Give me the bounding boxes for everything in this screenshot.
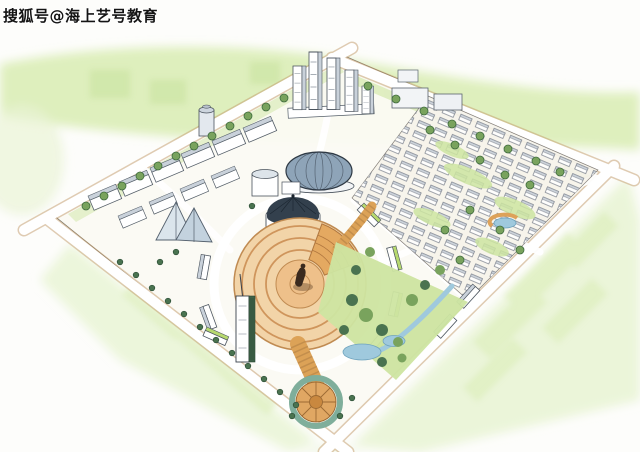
cylinder-hall <box>252 170 278 197</box>
water-tower <box>199 105 214 136</box>
master-plan-rendering: 搜狐号@海上艺号教育 <box>0 0 640 452</box>
lookout-plaza <box>292 378 340 426</box>
pond-large <box>343 344 381 360</box>
watermark-text: 搜狐号@海上艺号教育 <box>3 7 158 25</box>
sohu-watermark: 搜狐号@海上艺号教育 <box>3 5 158 26</box>
rendering-canvas <box>0 0 640 452</box>
